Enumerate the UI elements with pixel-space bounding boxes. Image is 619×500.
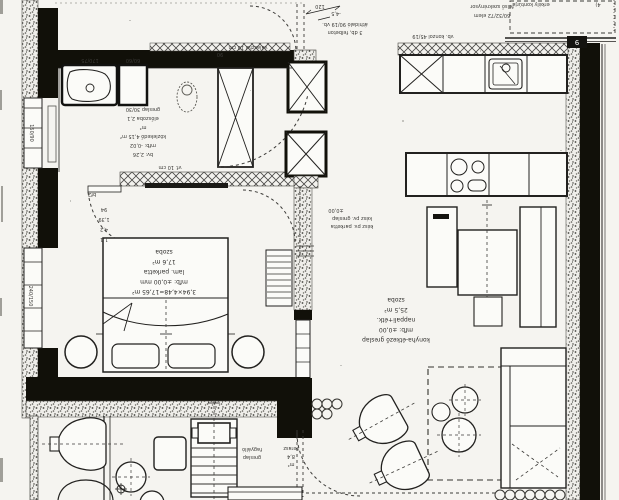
- floor-plan-drawing: greslap 30/30 előszoba 2,1 m² közlekedő …: [0, 0, 619, 500]
- kitchen-counter-top: [400, 55, 567, 93]
- sofa-icon: [501, 348, 566, 488]
- svg-text:1,39: 1,39: [98, 216, 109, 222]
- wall-stub-hatch: [294, 176, 318, 188]
- corner-mark: 4): [595, 1, 600, 7]
- kitchen-door-swing-arc: [243, 190, 295, 243]
- svg-text:3,94×4,48=17,65 m²: 3,94×4,48=17,65 m²: [131, 288, 196, 295]
- partition-hatch-top: [150, 43, 290, 51]
- svg-text:konyha-étkező greslap: konyha-étkező greslap: [362, 336, 430, 343]
- round-table2-icon: [140, 491, 164, 500]
- balcony-note: erkély kontúrja: [512, 1, 549, 8]
- room-label-hall: greslap 30/30: [126, 106, 160, 112]
- pillow-icon: [112, 344, 159, 368]
- wall-bottom-bedroom: [26, 377, 310, 401]
- bench-partial-icon: [228, 487, 302, 500]
- shower-tray-icon: [119, 65, 147, 105]
- living-room: [297, 348, 566, 500]
- tall-cabinet-icon: [520, 207, 556, 327]
- terrace-note: fagyálló: [242, 446, 262, 453]
- svg-text:mfb: ±0,00: mfb: ±0,00: [379, 326, 413, 333]
- svg-text:greslap: greslap: [243, 454, 261, 460]
- ventilation-shaft-icon: [288, 62, 326, 112]
- dim-stack: 94: [101, 206, 107, 212]
- svg-text:közlekedő 4,15 m²: közlekedő 4,15 m²: [120, 133, 166, 139]
- side-table-icon: [154, 437, 186, 470]
- svg-text:lam. parketta: lam. parketta: [144, 268, 185, 275]
- room-label-bedroom: szoba: [155, 248, 173, 255]
- pillow2-icon: [168, 344, 215, 368]
- wall-insulation-left: [22, 0, 38, 418]
- bedroom: [65, 238, 292, 372]
- dining-table-icon: [458, 200, 517, 302]
- shower-size: 60/60: [126, 57, 140, 63]
- fridge-icon: [427, 207, 457, 287]
- level-note: ±0,00: [328, 207, 343, 213]
- svg-text:mfb: -0,02: mfb: -0,02: [130, 142, 156, 148]
- window-code-left: 150/90: [28, 124, 34, 142]
- door-code: bf2: [88, 191, 96, 197]
- terrace-door-swing-arc: [297, 433, 360, 496]
- svg-text:nappali+étk.: nappali+étk.: [377, 316, 416, 323]
- badge-number: 9: [575, 38, 579, 46]
- radiator-bedroom-icon: [266, 250, 292, 306]
- wall-insulation-right: [566, 43, 580, 500]
- svg-text:bv: 2,26: bv: 2,26: [133, 151, 153, 157]
- scan-artifacts: [0, 0, 3, 482]
- wall-right: [580, 43, 600, 500]
- svg-text:mfb: ±0,00 mm: mfb: ±0,00 mm: [140, 278, 188, 285]
- tub-size: 170/75: [81, 57, 99, 63]
- svg-text:17,6 m²: 17,6 m²: [152, 258, 176, 265]
- svg-text:előszoba 2,1: előszoba 2,1: [127, 115, 159, 121]
- wall-corner-stub: [277, 378, 312, 438]
- kitchen-hatch-label: vb. konzol 45/19: [412, 33, 453, 39]
- chair-square-icon: [474, 297, 502, 326]
- terrace-armchair-icon: [42, 418, 126, 470]
- window-bedroom-right: [296, 320, 310, 378]
- svg-text:8,4: 8,4: [287, 453, 295, 459]
- terrace-area: terasz: [283, 445, 299, 451]
- entry-dim: 90: [217, 51, 223, 57]
- dim-120: 120: [315, 3, 325, 9]
- svg-text:25,5 m²: 25,5 m²: [384, 306, 408, 313]
- bathtub-icon: [62, 65, 117, 105]
- lintel-beam: [145, 183, 228, 188]
- svg-text:3 db, felbeton: 3 db, felbeton: [328, 29, 363, 35]
- wall-insulation-bottom: [26, 401, 300, 417]
- wall-left-middle: [38, 168, 58, 248]
- svg-text:kész pv. parketta: kész pv. parketta: [331, 223, 374, 230]
- bathroom-hall: [58, 4, 314, 258]
- ventilation-shaft2-icon: [286, 132, 326, 176]
- round-table-icon: [112, 458, 150, 496]
- radiator-icon: [48, 106, 56, 162]
- wardrobe-icon: [218, 68, 253, 167]
- nightstand-icon: [65, 336, 97, 368]
- kitchen: [400, 55, 567, 327]
- floor-plan-scan: greslap 30/30 előszoba 2,1 m² közlekedő …: [0, 0, 619, 500]
- toilet-icon: [177, 82, 197, 112]
- nightstand2-icon: [232, 336, 264, 368]
- room-label-living: szoba: [387, 296, 405, 303]
- kitchen-island: [406, 153, 567, 196]
- coffee-table-icon: [432, 384, 481, 457]
- svg-text:60/32/72 elem: 60/32/72 elem: [474, 12, 511, 18]
- svg-text:m²: m²: [140, 124, 147, 130]
- svg-text:1,1: 1,1: [100, 236, 108, 242]
- wall-bedroom-right-black: [294, 310, 312, 320]
- svg-text:4,2: 4,2: [100, 226, 108, 232]
- window-code-bedroom: 240/150: [27, 286, 33, 307]
- insulation-loops-corner: [312, 399, 342, 419]
- partition-label-mid: vf. 10 cm: [158, 164, 181, 170]
- top-note: áthidaló 90/19 vb.: [322, 21, 368, 28]
- terrace-chair-partial-icon: [58, 480, 113, 500]
- wall-bedroom-right: [294, 188, 312, 310]
- level-mark: -4,5: [331, 10, 341, 16]
- svg-text:m²: m²: [288, 461, 295, 467]
- kitchen-note: felső szekrénysor: [469, 3, 513, 10]
- svg-text:kész pv. greslap: kész pv. greslap: [332, 215, 372, 222]
- insulation-loops-bottom: [495, 490, 565, 500]
- kitchen-wall-hatch: [398, 43, 568, 55]
- partition-label-top: válaszfal 10 cm: [228, 44, 267, 51]
